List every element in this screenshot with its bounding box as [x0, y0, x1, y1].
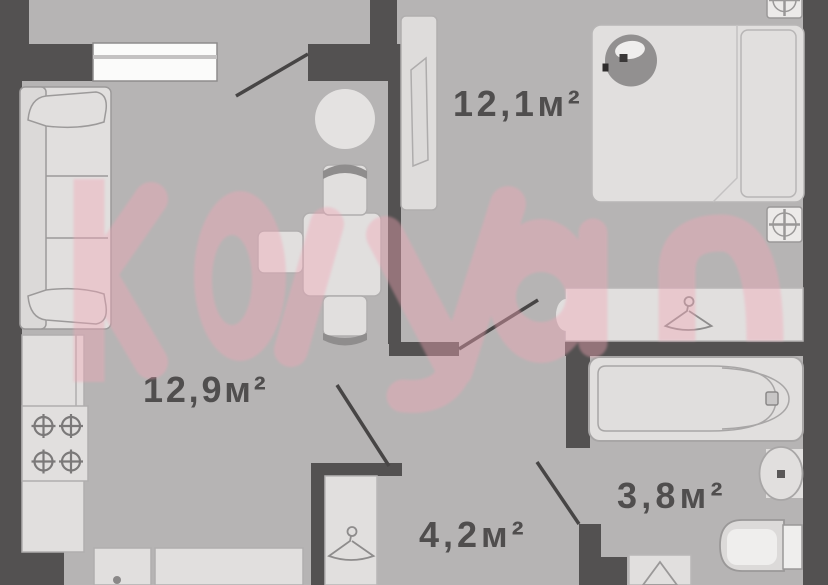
svg-text:4,2м²: 4,2м² — [419, 514, 528, 555]
svg-text:12,9м²: 12,9м² — [143, 369, 269, 410]
svg-text:3,8м²: 3,8м² — [617, 475, 727, 516]
svg-text:12,1м²: 12,1м² — [453, 83, 583, 124]
